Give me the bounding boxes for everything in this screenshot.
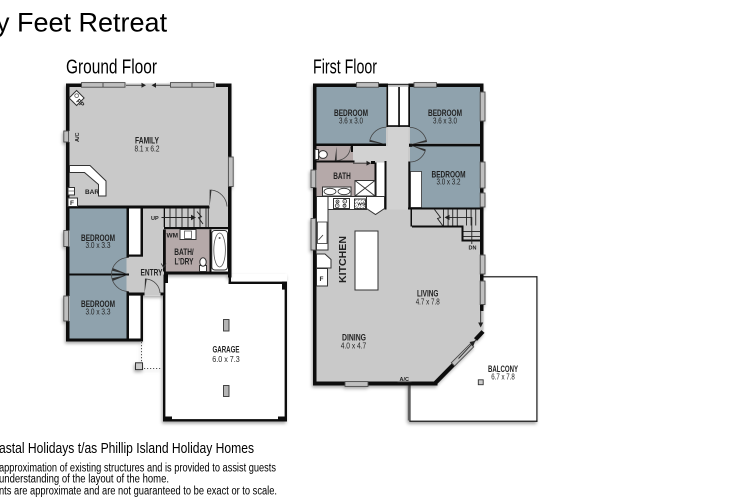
svg-text:KITCHEN: KITCHEN [337,236,349,283]
svg-text:A/C: A/C [75,133,81,143]
svg-text:F: F [320,276,324,283]
svg-text:6.0 x 7.3: 6.0 x 7.3 [212,355,240,364]
svg-text:y Feet Retreat: y Feet Retreat [0,8,168,38]
svg-text:4.7 x 7.8: 4.7 x 7.8 [416,298,440,307]
svg-text:GARAGE: GARAGE [213,345,240,356]
svg-text:A/C: A/C [400,377,410,383]
svg-text:Ground Floor: Ground Floor [66,57,157,79]
svg-text:8.1 x 6.2: 8.1 x 6.2 [135,145,160,154]
svg-text:3.6 x 3.0: 3.6 x 3.0 [433,117,458,126]
svg-text:astal Holidays t/as Phillip Is: astal Holidays t/as Phillip Island Holid… [0,441,254,457]
svg-text:3.6 x 3.0: 3.6 x 3.0 [339,117,364,126]
svg-text:understanding of the layout of: understanding of the layout of the home. [0,474,169,486]
svg-text:L’DRY: L’DRY [175,257,194,268]
svg-text:6.7 x 7.8: 6.7 x 7.8 [491,373,515,382]
svg-text:nts are approximate and are no: nts are approximate and are not guarante… [0,486,277,498]
svg-text:WS: WS [357,202,366,208]
svg-text:WM: WM [167,233,179,240]
svg-text:4.0 x 4.7: 4.0 x 4.7 [341,342,367,351]
svg-text:3.0 x 3.3: 3.0 x 3.3 [86,241,111,250]
svg-text:DN: DN [469,246,477,252]
svg-text:ENTRY: ENTRY [141,268,163,279]
svg-text:BAR: BAR [85,189,99,196]
svg-text:First Floor: First Floor [313,57,377,79]
svg-text:BATH: BATH [333,171,351,182]
svg-text:F: F [70,200,74,207]
svg-text:UP: UP [151,216,159,222]
svg-text:3.0 x 3.2: 3.0 x 3.2 [437,178,461,187]
svg-text:3.0 x 3.3: 3.0 x 3.3 [86,308,111,317]
